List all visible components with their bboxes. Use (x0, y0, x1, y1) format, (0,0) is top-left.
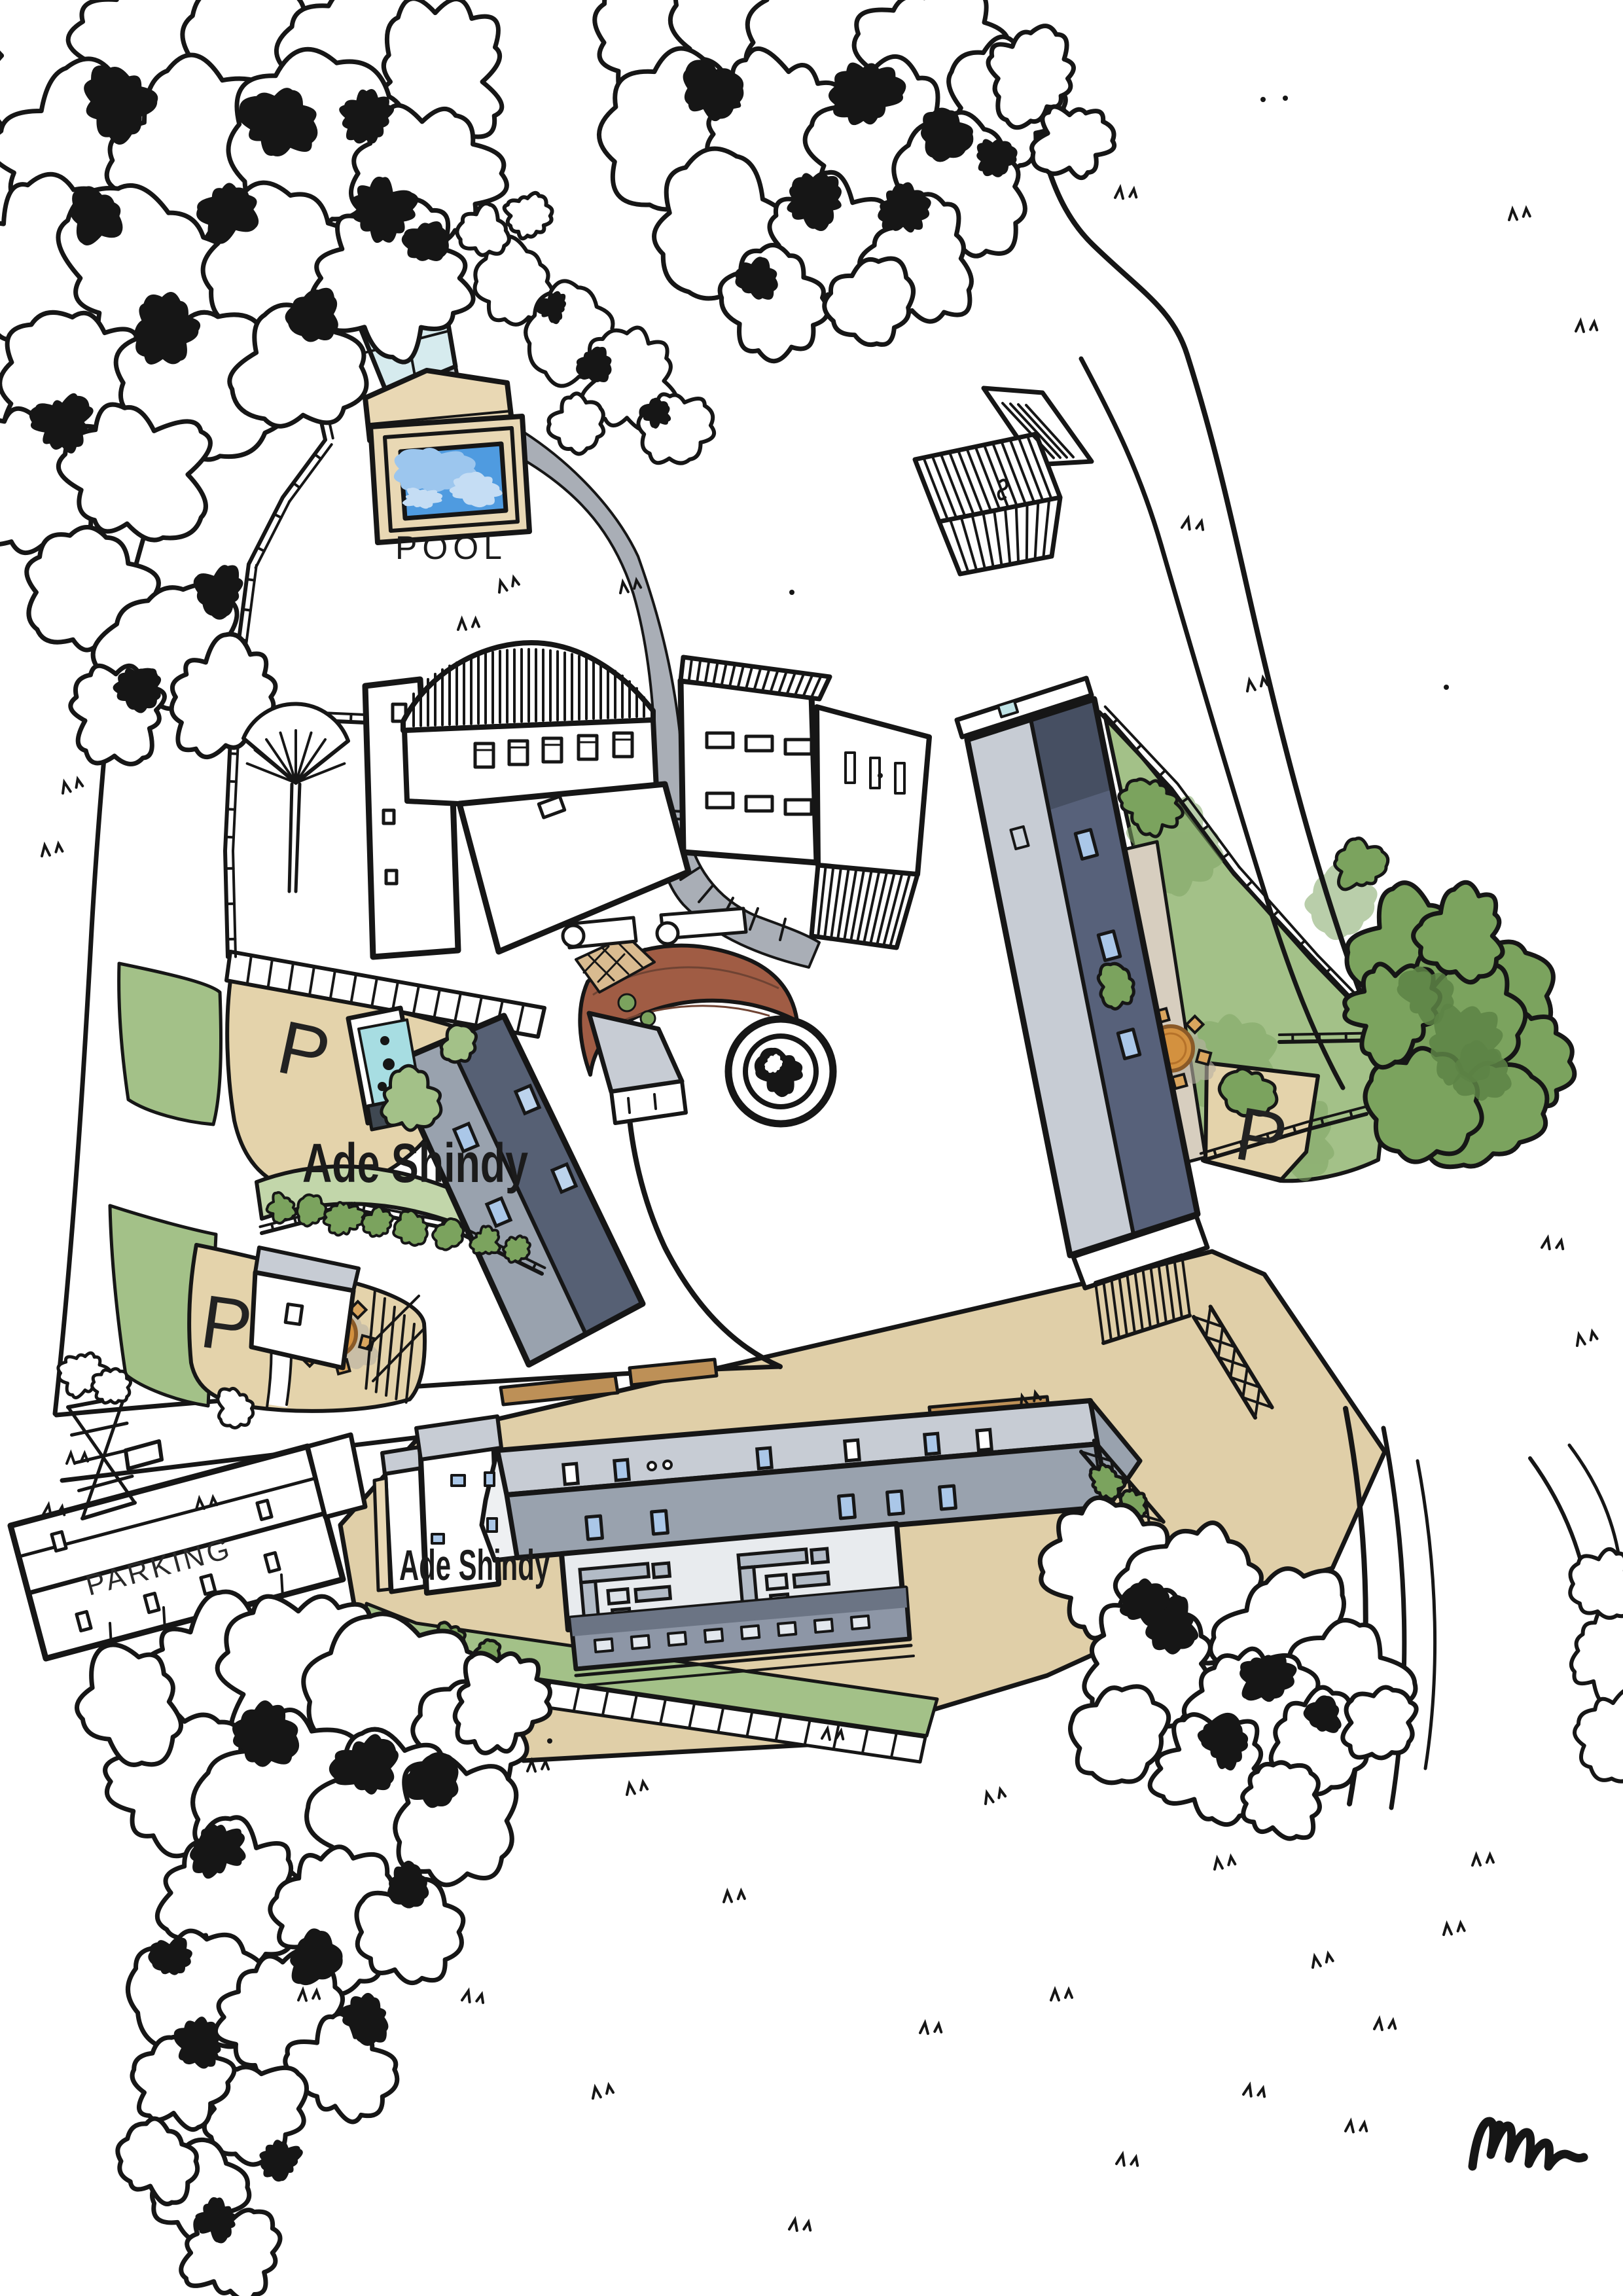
gable-window (485, 1473, 494, 1486)
site-map: POOL Ade Shindy Ade Shindy PARKING P P P (0, 0, 1623, 2296)
tree-blob (1570, 1549, 1623, 1618)
detail-line (243, 609, 251, 611)
detail-line (247, 579, 255, 581)
speck (547, 1738, 552, 1744)
furniture (635, 1587, 670, 1601)
detail-line (233, 740, 238, 852)
tree-blob (1098, 963, 1133, 1009)
grass-tuft (591, 2085, 613, 2098)
detail-line (1160, 770, 1166, 776)
detail-line (256, 501, 290, 567)
tree-blob (92, 1369, 131, 1403)
detail-line (1350, 1111, 1352, 1118)
courtyard (627, 950, 833, 1367)
furniture (766, 1575, 787, 1590)
grass-tuft (1542, 1237, 1564, 1251)
pool-label: POOL (395, 529, 507, 566)
roof-window (563, 1463, 579, 1484)
tree-blob (1243, 1763, 1320, 1839)
garage-window (285, 1304, 302, 1325)
grass-tuft (458, 619, 479, 630)
grass-tuft (1472, 1854, 1493, 1865)
grass-tuft (497, 577, 520, 592)
detail-line (289, 444, 332, 502)
furniture (608, 1589, 629, 1604)
deck-window (741, 1626, 759, 1639)
speck (878, 773, 883, 778)
tree-blob (1575, 1689, 1623, 1781)
tree-blob (393, 1211, 427, 1246)
speck (1283, 96, 1288, 101)
detail-line (272, 1224, 273, 1230)
detail-line (289, 784, 292, 891)
estate-label-lower: Ade Shindy (399, 1541, 550, 1589)
grass-tuft (1243, 2084, 1266, 2099)
barn-window (265, 1552, 279, 1571)
grass-tuft (723, 1891, 745, 1902)
detail-line (1321, 1119, 1323, 1126)
facade-window (543, 738, 562, 762)
trees-bottom-right (1040, 1498, 1416, 1839)
left-annex-window-3 (386, 870, 397, 884)
tree-blob (441, 1024, 476, 1062)
barn-window (257, 1500, 272, 1519)
tree-blob (1032, 107, 1115, 178)
tree-blob (1343, 1687, 1416, 1758)
barn-window (145, 1593, 159, 1612)
gable-window (488, 1518, 497, 1532)
main-house-complex (365, 643, 929, 957)
house-ne-annex-roof (589, 1013, 682, 1092)
balcony-dot-2 (383, 1058, 395, 1070)
annex-window (746, 797, 772, 811)
detail-line (1246, 882, 1252, 887)
grass-tuft (789, 2219, 811, 2233)
trees-top-center (595, 0, 1115, 361)
grass-tuft (1213, 1856, 1236, 1869)
wing-window (895, 763, 904, 793)
grass-tuft (1245, 677, 1268, 691)
speck (789, 590, 794, 595)
deck-window (851, 1616, 869, 1629)
lodge-annex-window-1 (452, 1475, 465, 1486)
roof-window (839, 1495, 855, 1518)
tree-blob (1335, 838, 1388, 889)
furniture (653, 1563, 670, 1577)
deck-window (815, 1619, 832, 1632)
grass-tuft (1374, 2018, 1396, 2031)
facade-window (614, 733, 632, 757)
detail-line (296, 784, 300, 891)
tree-blob (503, 1236, 530, 1263)
deck-window (632, 1636, 649, 1649)
grass-tuft (527, 1761, 549, 1772)
big-tree-right (1345, 882, 1575, 1166)
detail-line (281, 1575, 283, 1597)
annex-window (707, 793, 733, 808)
roof-window (586, 1516, 603, 1539)
detail-line (228, 781, 236, 782)
grass-tuft (60, 778, 83, 793)
roof-window (887, 1491, 904, 1515)
road-bend-3 (1418, 1461, 1435, 1768)
estate-label-upper: Ade Shindy (302, 1132, 528, 1194)
deck-window (668, 1632, 686, 1645)
annex-window (746, 736, 772, 751)
facade-window (579, 736, 597, 759)
roof-window (652, 1511, 668, 1534)
detail-line (227, 809, 235, 810)
grass-tuft (41, 844, 62, 856)
detail-line (294, 1218, 296, 1225)
middle-wing (817, 707, 929, 874)
barn-window (77, 1611, 91, 1630)
detail-line (351, 714, 351, 722)
roof-window (845, 1440, 860, 1461)
barn-window (201, 1575, 215, 1594)
grass-tuft (1346, 2121, 1368, 2134)
wing-window (870, 758, 880, 788)
detail-line (257, 548, 264, 551)
roof-vent (664, 1461, 671, 1469)
roof-window (940, 1486, 956, 1509)
grass-tuft (462, 1990, 485, 2005)
lodge-annex-2-side (374, 1478, 390, 1590)
detail-line (293, 483, 300, 488)
trees-right-edge (1570, 1549, 1623, 1782)
tree-blob (505, 193, 552, 239)
grass-tuft (1575, 1331, 1598, 1346)
grass-tuft (1182, 517, 1205, 532)
speck (1260, 97, 1266, 102)
grass-tuft (1443, 1923, 1465, 1935)
tree-blob (118, 2119, 198, 2204)
annex-window (785, 740, 811, 754)
detail-line (315, 454, 321, 459)
deck-window (595, 1639, 613, 1652)
barn-dormer (126, 1441, 162, 1469)
detail-line (226, 837, 234, 838)
tree-blob (324, 1202, 365, 1235)
left-annex-window-2 (383, 810, 394, 823)
annex-window (785, 800, 811, 814)
grass-tuft (626, 1782, 648, 1795)
detail-line (110, 1623, 111, 1645)
grass-tuft (1576, 321, 1597, 332)
planter-dot-1 (618, 994, 635, 1011)
field-shed (915, 388, 1092, 574)
furniture (794, 1572, 829, 1587)
roof-window (925, 1433, 940, 1454)
roof-vent (648, 1462, 656, 1470)
tree-blob (297, 1194, 326, 1226)
palm-tree (243, 704, 348, 891)
right-annex (681, 681, 817, 863)
grass-tuft (1508, 208, 1530, 220)
roof-window (977, 1429, 992, 1450)
furniture (811, 1549, 829, 1563)
tree-blob (433, 1219, 463, 1250)
detail-line (1027, 504, 1027, 561)
facade-window (509, 741, 527, 764)
detail-line (274, 514, 281, 518)
barn-window (52, 1532, 66, 1551)
deck-window (778, 1623, 796, 1636)
tree-blob (1071, 1687, 1169, 1783)
detail-line (164, 1607, 165, 1630)
roof-window (757, 1448, 772, 1469)
tree-blob (548, 393, 603, 454)
deck-window (705, 1629, 722, 1642)
facade-window (475, 744, 493, 767)
grass-tuft (920, 2022, 942, 2035)
annex-window (707, 733, 733, 747)
grass-tuft (1115, 187, 1137, 200)
round-planter-2 (657, 923, 678, 944)
signature-stroke (1472, 2121, 1584, 2166)
roof-window (615, 1460, 630, 1480)
wing-window (846, 753, 855, 783)
patio-chair (1196, 1050, 1211, 1064)
trees-bottom-left (77, 1592, 550, 2296)
garden-bed-left-upper (119, 963, 221, 1124)
detail-line (230, 753, 238, 754)
speck (1444, 685, 1449, 690)
round-planter-1 (563, 925, 584, 946)
grass-tuft (1311, 1953, 1333, 1967)
artist-signature (1472, 2121, 1584, 2166)
balcony-dot-1 (380, 1036, 389, 1045)
grass-tuft (983, 1789, 1006, 1804)
grass-tuft (1116, 2153, 1139, 2168)
signature-dot (1495, 2121, 1504, 2130)
grass-tuft (1051, 1990, 1072, 2000)
